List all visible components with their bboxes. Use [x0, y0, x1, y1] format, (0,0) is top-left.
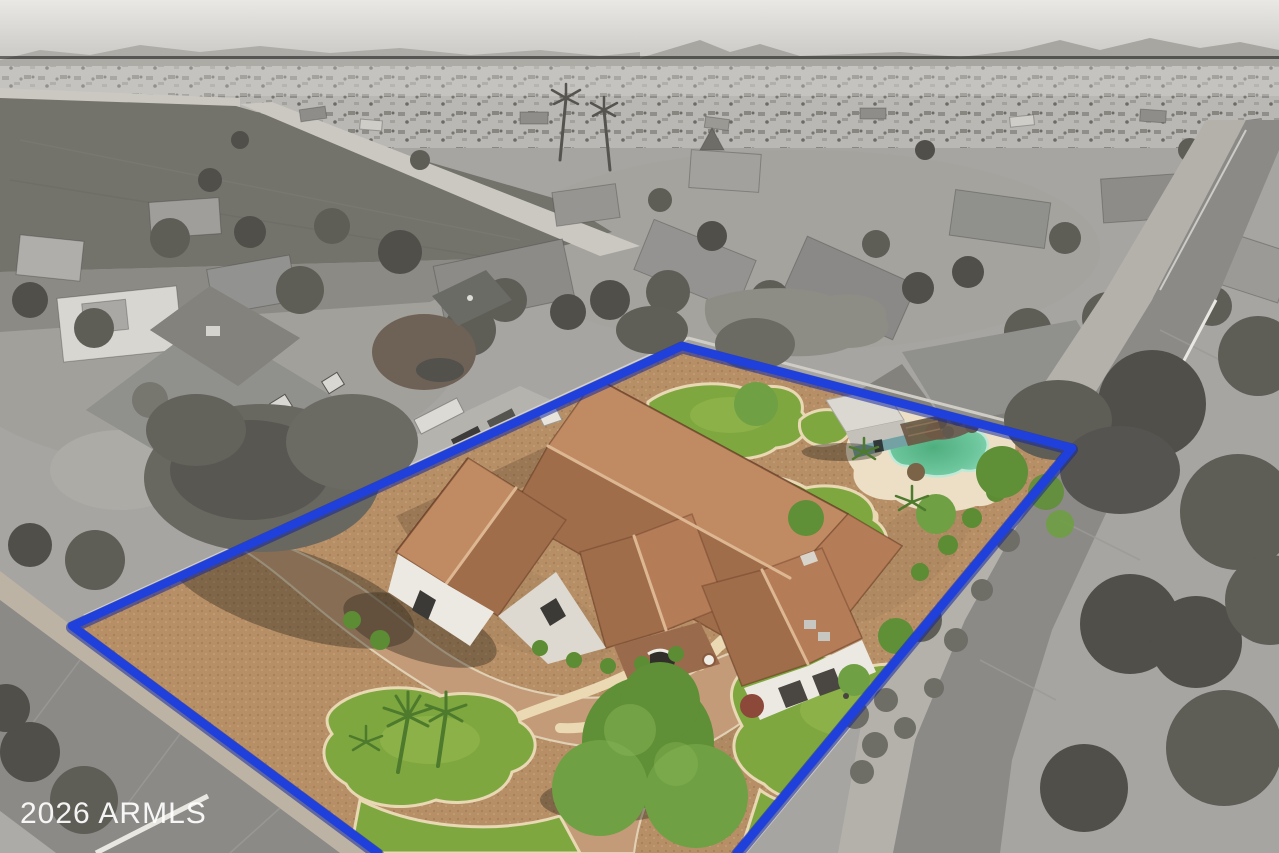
- parkway-tree: [65, 530, 125, 590]
- red-bush: [740, 694, 764, 718]
- umbrella: [907, 463, 925, 481]
- watermark-text: 2026 ARMLS: [20, 797, 207, 830]
- mansion-pond: [416, 358, 464, 382]
- parkway-tree: [8, 523, 52, 567]
- person: [843, 693, 849, 699]
- distant-sprawl-fade: [0, 66, 1279, 96]
- mansion-chimney: [206, 326, 220, 336]
- ac-unit: [804, 620, 816, 629]
- aerial-photo: 2026 ARMLS: [0, 0, 1279, 853]
- oculus-window: [703, 654, 715, 666]
- ac-unit: [818, 632, 830, 641]
- court-key: [467, 295, 473, 301]
- horizon-haze: [0, 56, 1279, 59]
- aerial-photo-canvas: 2026 ARMLS: [0, 0, 1279, 853]
